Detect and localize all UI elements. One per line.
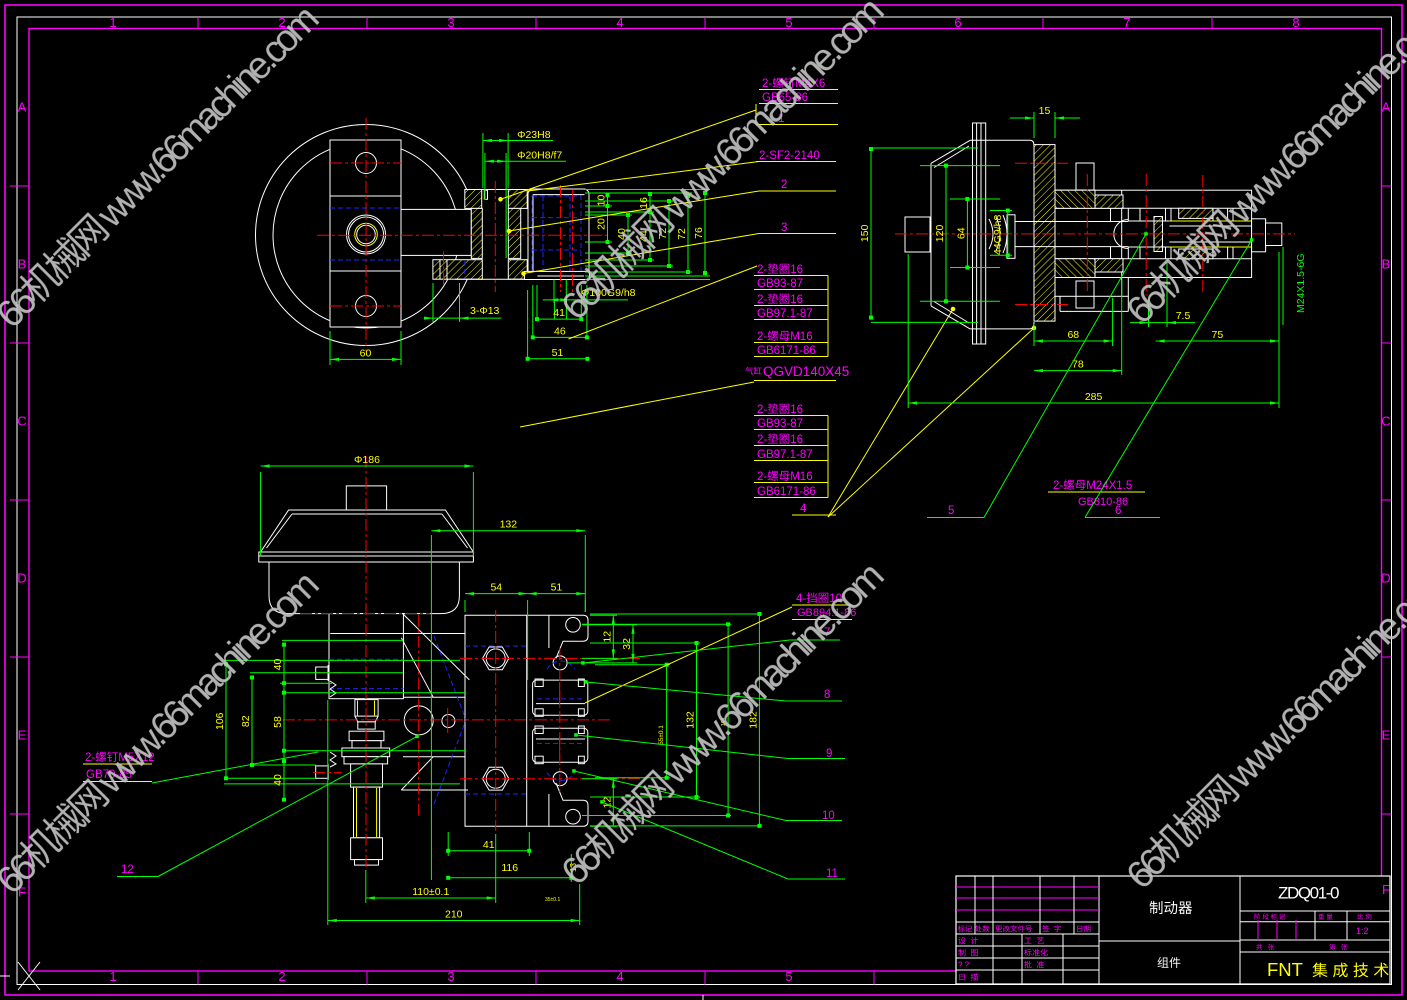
svg-text:35±0.1: 35±0.1 — [545, 897, 560, 903]
svg-text:51: 51 — [551, 582, 563, 594]
svg-text:A: A — [18, 100, 27, 115]
svg-text:D: D — [1381, 571, 1390, 586]
svg-text:3-Φ13: 3-Φ13 — [470, 305, 500, 317]
svg-text:46: 46 — [554, 325, 566, 337]
svg-text:7.5: 7.5 — [1176, 310, 1191, 322]
svg-text:15: 15 — [1039, 105, 1051, 117]
svg-text:2-: 2- — [757, 331, 767, 343]
svg-text:110±0.1: 110±0.1 — [412, 886, 449, 898]
svg-text:2: 2 — [278, 969, 285, 984]
svg-text:55±0.1: 55±0.1 — [658, 725, 665, 745]
svg-text:75: 75 — [1212, 329, 1224, 341]
svg-text:7: 7 — [1123, 15, 1130, 30]
svg-text:58: 58 — [272, 716, 284, 728]
svg-text:3: 3 — [447, 969, 454, 984]
svg-text:44G9/h8: 44G9/h8 — [992, 215, 1004, 255]
svg-text:4: 4 — [616, 969, 623, 984]
svg-text:4: 4 — [616, 15, 623, 30]
svg-text:C: C — [17, 414, 26, 429]
svg-text:2-: 2- — [757, 471, 767, 483]
svg-text:210: 210 — [445, 909, 463, 921]
svg-text:Φ186: Φ186 — [354, 454, 380, 466]
svg-text:2-: 2- — [85, 752, 95, 764]
svg-text:8: 8 — [1292, 15, 1299, 30]
svg-text:1: 1 — [109, 15, 116, 30]
svg-text:2-SF2-2140: 2-SF2-2140 — [759, 150, 820, 162]
svg-text:M24X1.5-6G: M24X1.5-6G — [1295, 253, 1307, 313]
svg-text:51: 51 — [552, 347, 564, 359]
svg-text:12: 12 — [601, 631, 613, 643]
svg-text:150: 150 — [859, 224, 871, 242]
svg-text:Φ23H8: Φ23H8 — [517, 129, 551, 141]
svg-text:C: C — [1381, 414, 1390, 429]
svg-text:1:2: 1:2 — [1356, 926, 1369, 936]
svg-text:Φ20H8/f7: Φ20H8/f7 — [517, 149, 562, 161]
svg-text:116: 116 — [501, 862, 518, 874]
svg-text:3: 3 — [447, 15, 454, 30]
svg-text:E: E — [18, 728, 27, 743]
svg-text:5: 5 — [948, 505, 954, 517]
svg-text:M16: M16 — [790, 471, 812, 483]
svg-text:2-: 2- — [757, 294, 767, 306]
svg-text:GB93-87: GB93-87 — [757, 278, 803, 290]
svg-text:72: 72 — [676, 228, 688, 240]
svg-text:A: A — [1382, 100, 1391, 115]
svg-text:8: 8 — [824, 689, 830, 701]
svg-text:F: F — [1382, 882, 1390, 897]
svg-text:3: 3 — [781, 222, 787, 234]
svg-text:2: 2 — [781, 179, 787, 191]
svg-text:GB6171-86: GB6171-86 — [757, 345, 816, 357]
svg-text:2-: 2- — [757, 404, 767, 416]
svg-text:68: 68 — [1067, 329, 1079, 341]
svg-text:12: 12 — [121, 864, 134, 876]
svg-text:16: 16 — [790, 404, 803, 416]
svg-text:M16: M16 — [790, 331, 812, 343]
svg-text:5: 5 — [785, 969, 792, 984]
svg-text:GB97.1-87: GB97.1-87 — [757, 449, 813, 461]
svg-text:16: 16 — [638, 197, 650, 209]
svg-text:60: 60 — [360, 347, 372, 359]
svg-text:4: 4 — [800, 503, 807, 515]
svg-text:5: 5 — [785, 15, 792, 30]
svg-text:54: 54 — [490, 582, 502, 594]
svg-text:GB6171-86: GB6171-86 — [757, 486, 816, 498]
svg-text:40: 40 — [272, 774, 284, 786]
svg-text:120: 120 — [934, 225, 946, 243]
svg-text:B: B — [18, 257, 27, 272]
svg-text:16: 16 — [790, 294, 803, 306]
svg-text:132: 132 — [500, 519, 518, 531]
svg-text:? ?: ? ? — [958, 961, 970, 970]
svg-text:32: 32 — [621, 638, 633, 650]
svg-text:GB93-87: GB93-87 — [757, 418, 803, 430]
svg-text:2-: 2- — [1053, 480, 1063, 492]
svg-text:76: 76 — [693, 227, 705, 239]
svg-text:2-: 2- — [757, 434, 767, 446]
svg-text:64: 64 — [955, 227, 967, 239]
svg-text:16: 16 — [790, 434, 803, 446]
svg-text:ZDQ01-0: ZDQ01-0 — [1278, 884, 1339, 903]
svg-text:QGVD140X45: QGVD140X45 — [763, 364, 849, 379]
svg-text:FNT: FNT — [1267, 959, 1303, 980]
svg-text:16: 16 — [790, 264, 803, 276]
svg-text:106: 106 — [214, 712, 226, 730]
svg-text:D: D — [17, 571, 26, 586]
svg-text:1: 1 — [109, 969, 116, 984]
svg-text:40: 40 — [272, 659, 284, 671]
svg-text:4-: 4- — [796, 593, 806, 605]
svg-text:6: 6 — [1115, 505, 1121, 517]
svg-text:M24X1.5: M24X1.5 — [1086, 480, 1132, 492]
svg-text:E: E — [1382, 728, 1391, 743]
svg-text:6: 6 — [954, 15, 961, 30]
svg-text:82: 82 — [240, 715, 252, 727]
svg-text:41: 41 — [483, 839, 495, 851]
svg-text:11: 11 — [826, 868, 838, 880]
svg-text:B: B — [1382, 257, 1391, 272]
svg-text:GB97.1-87: GB97.1-87 — [757, 308, 813, 320]
svg-text:285: 285 — [1085, 391, 1103, 403]
svg-text:20: 20 — [596, 218, 608, 230]
svg-text:2-: 2- — [757, 264, 767, 276]
